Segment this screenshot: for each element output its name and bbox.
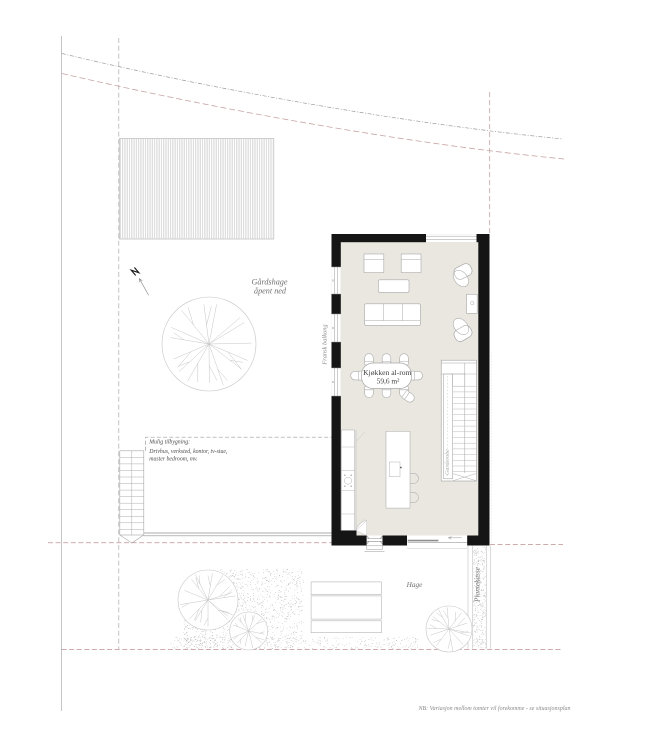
svg-text:Garderobe: Garderobe [445, 449, 451, 475]
svg-text:Gårdshage: Gårdshage [251, 277, 287, 286]
svg-text:NB: Variasjon mellom tomter vi: NB: Variasjon mellom tomter vil forekomm… [417, 705, 570, 712]
svg-text:Hage: Hage [406, 580, 424, 589]
svg-text:59,6 m²: 59,6 m² [377, 377, 401, 386]
svg-text:master bedroom, mv.: master bedroom, mv. [149, 456, 197, 462]
svg-text:åpent ned: åpent ned [254, 286, 287, 295]
svg-text:Mulig tilbygning:: Mulig tilbygning: [148, 439, 190, 445]
svg-text:Drivhus, verksted, kontor, tv-: Drivhus, verksted, kontor, tv-stue, [148, 449, 228, 455]
svg-text:Fransk balkong: Fransk balkong [322, 324, 329, 366]
svg-text:Plantekasse: Plantekasse [473, 566, 482, 603]
